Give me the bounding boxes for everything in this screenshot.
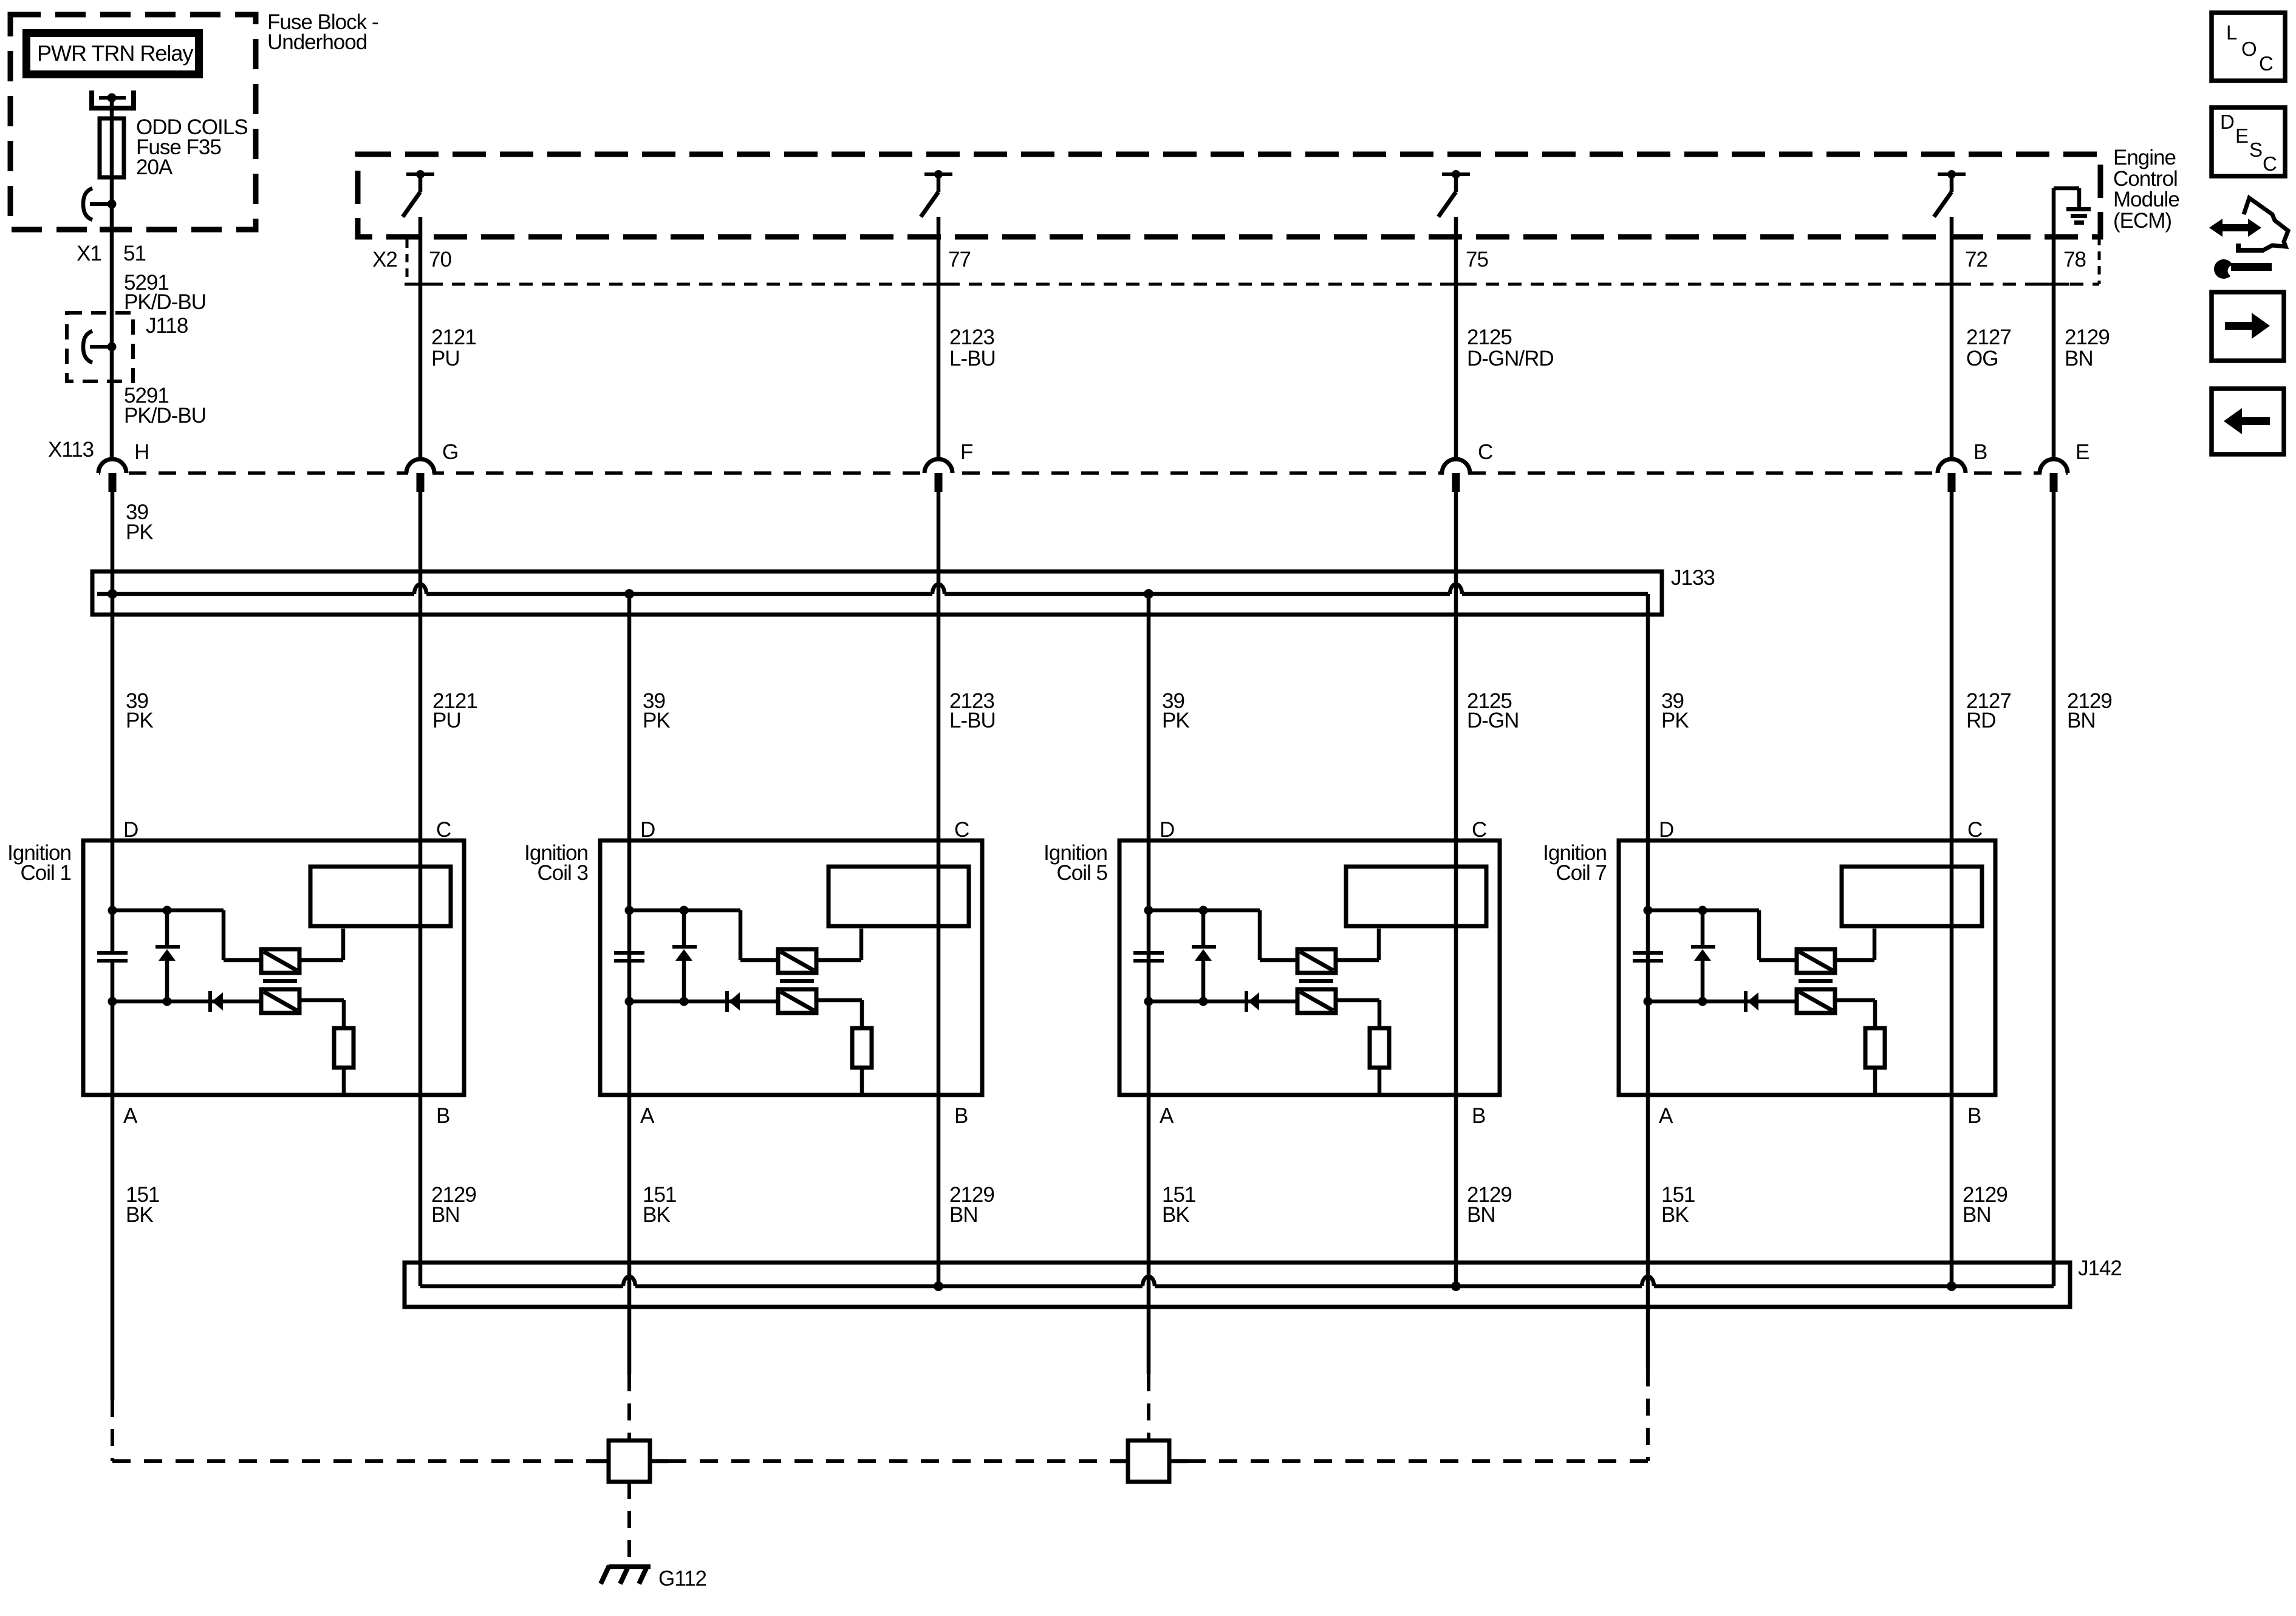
svg-text:72: 72: [1965, 248, 1987, 271]
svg-text:B: B: [1472, 1104, 1485, 1128]
svg-text:BK: BK: [643, 1203, 670, 1227]
svg-text:BK: BK: [126, 1203, 153, 1227]
svg-text:BN: BN: [2067, 709, 2096, 732]
svg-text:2127: 2127: [1966, 326, 2011, 349]
svg-text:X2: X2: [372, 248, 397, 271]
svg-text:C: C: [954, 818, 969, 842]
svg-text:E: E: [2235, 124, 2249, 147]
svg-text:70: 70: [429, 248, 451, 271]
svg-text:D: D: [123, 818, 138, 842]
svg-text:C: C: [1472, 818, 1486, 842]
svg-text:BK: BK: [1162, 1203, 1189, 1227]
svg-text:Coil 5: Coil 5: [1057, 861, 1107, 885]
svg-text:BK: BK: [1661, 1203, 1689, 1227]
svg-text:PK: PK: [126, 709, 153, 732]
svg-text:77: 77: [948, 248, 971, 271]
svg-text:A: A: [640, 1104, 655, 1128]
svg-text:2129: 2129: [2065, 326, 2110, 349]
svg-text:C: C: [436, 818, 451, 842]
svg-text:(ECM): (ECM): [2113, 209, 2171, 233]
svg-text:PK: PK: [1661, 709, 1689, 732]
svg-text:C: C: [2263, 152, 2277, 175]
svg-text:B: B: [1967, 1104, 1981, 1128]
svg-text:X1: X1: [77, 242, 101, 265]
svg-text:OG: OG: [1966, 347, 1998, 370]
svg-text:BN: BN: [949, 1203, 978, 1227]
svg-text:Coil 7: Coil 7: [1556, 861, 1607, 885]
svg-text:Coil 3: Coil 3: [538, 861, 588, 885]
svg-text:BN: BN: [2065, 347, 2093, 370]
svg-text:PK: PK: [1162, 709, 1189, 732]
svg-text:C: C: [1478, 440, 1492, 464]
svg-text:B: B: [954, 1104, 968, 1128]
svg-text:RD: RD: [1966, 709, 1996, 732]
svg-text:D-GN: D-GN: [1467, 709, 1519, 732]
svg-text:D: D: [2220, 111, 2235, 133]
svg-text:F: F: [960, 440, 972, 464]
svg-text:A: A: [123, 1104, 138, 1128]
svg-text:S: S: [2249, 138, 2263, 161]
svg-text:A: A: [1659, 1104, 1673, 1128]
svg-text:G112: G112: [658, 1567, 706, 1590]
svg-text:G: G: [442, 440, 458, 464]
svg-text:Module: Module: [2113, 188, 2179, 211]
svg-text:BN: BN: [431, 1203, 460, 1227]
svg-text:51: 51: [123, 242, 146, 265]
svg-text:D-GN/RD: D-GN/RD: [1467, 347, 1554, 370]
svg-text:D: D: [640, 818, 655, 842]
svg-text:A: A: [1160, 1104, 1174, 1128]
svg-text:J133: J133: [1671, 566, 1715, 590]
svg-text:Engine: Engine: [2113, 146, 2176, 169]
svg-text:B: B: [436, 1104, 449, 1128]
svg-text:E: E: [2076, 440, 2089, 464]
svg-text:PWR TRN Relay: PWR TRN Relay: [37, 41, 193, 66]
svg-text:H: H: [134, 440, 149, 464]
svg-text:D: D: [1659, 818, 1673, 842]
svg-text:PU: PU: [432, 709, 461, 732]
svg-text:X113: X113: [48, 438, 94, 462]
svg-text:BN: BN: [1963, 1203, 1991, 1227]
svg-text:L-BU: L-BU: [949, 347, 996, 370]
svg-text:J142: J142: [2078, 1256, 2122, 1280]
svg-text:BN: BN: [1467, 1203, 1495, 1227]
svg-text:2123: 2123: [949, 326, 994, 349]
svg-text:J118: J118: [146, 314, 188, 338]
svg-text:2125: 2125: [1467, 326, 1512, 349]
svg-text:Coil 1: Coil 1: [21, 861, 71, 885]
svg-text:PK/D-BU: PK/D-BU: [124, 404, 206, 428]
svg-text:PK: PK: [643, 709, 670, 732]
svg-text:C: C: [2259, 52, 2274, 75]
svg-text:D: D: [1160, 818, 1174, 842]
svg-text:PK: PK: [126, 520, 153, 544]
svg-text:L-BU: L-BU: [949, 709, 996, 732]
svg-text:B: B: [1973, 440, 1987, 464]
svg-text:20A: 20A: [136, 155, 173, 179]
svg-text:PU: PU: [431, 347, 460, 370]
svg-text:L: L: [2226, 21, 2237, 44]
svg-text:C: C: [1967, 818, 1982, 842]
svg-text:78: 78: [2063, 248, 2086, 271]
svg-text:75: 75: [1466, 248, 1488, 271]
svg-text:Underhood: Underhood: [267, 30, 367, 54]
svg-text:2121: 2121: [431, 326, 476, 349]
svg-text:PK/D-BU: PK/D-BU: [124, 290, 206, 314]
svg-text:O: O: [2241, 38, 2257, 60]
